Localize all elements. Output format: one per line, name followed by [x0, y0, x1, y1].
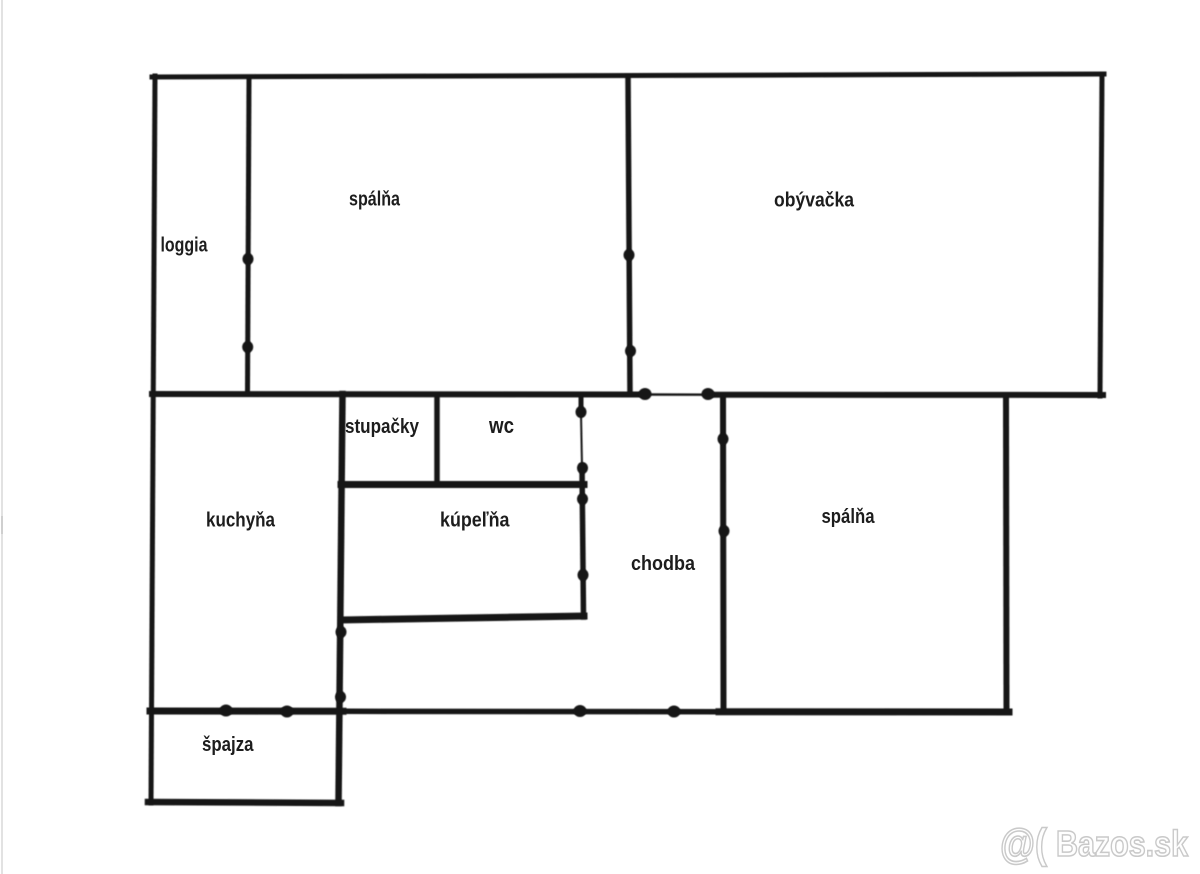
svg-text:špajza: špajza — [202, 734, 254, 756]
svg-text:wc: wc — [488, 413, 514, 438]
svg-text:Bazos.sk: Bazos.sk — [1056, 823, 1189, 864]
svg-text:chodba: chodba — [631, 553, 696, 575]
svg-text:spálňa: spálňa — [349, 189, 401, 211]
svg-text:kuchyňa: kuchyňa — [206, 510, 276, 532]
svg-text:kúpeľňa: kúpeľňa — [440, 510, 510, 532]
svg-text:stupačky: stupačky — [345, 416, 420, 438]
svg-text:@(: @( — [1000, 820, 1047, 867]
svg-text:loggia: loggia — [161, 235, 209, 257]
svg-text:spálňa: spálňa — [822, 506, 876, 528]
svg-text:obývačka: obývačka — [774, 190, 855, 212]
